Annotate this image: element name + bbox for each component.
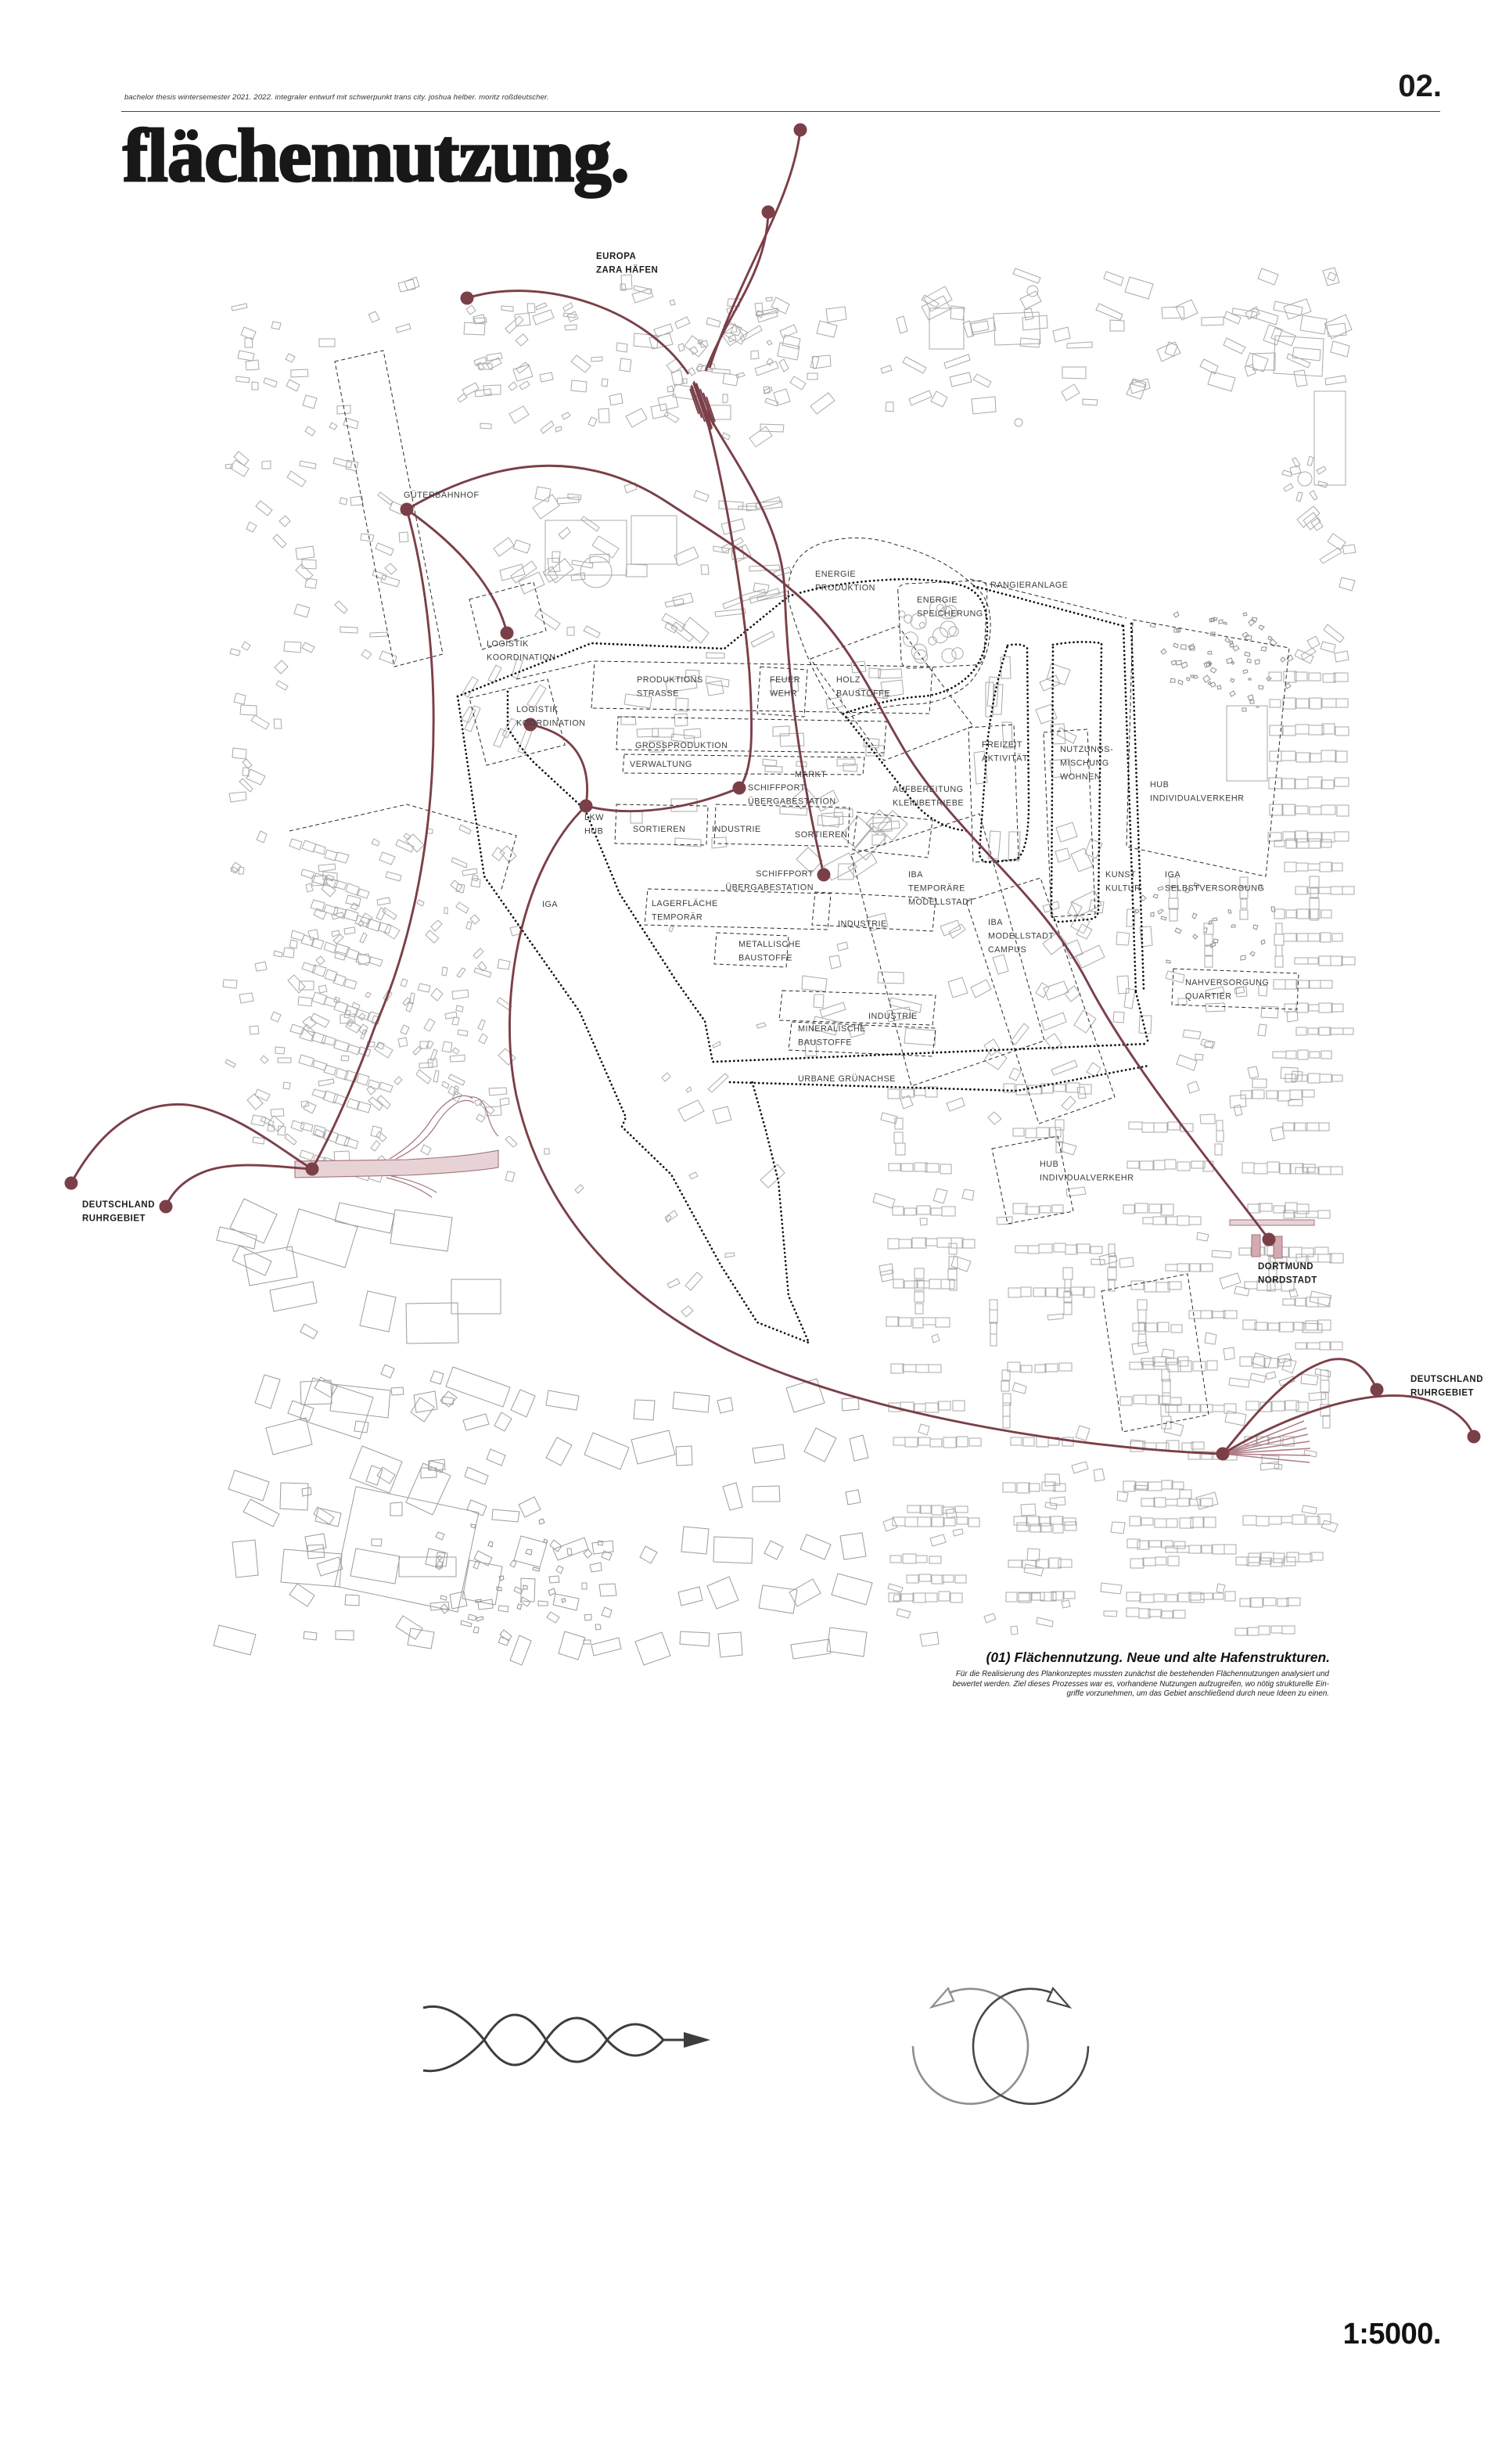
svg-text:SORTIEREN: SORTIEREN — [795, 830, 847, 840]
svg-text:SCHIFFPORT: SCHIFFPORT — [756, 869, 814, 879]
svg-text:GROSSPRODUKTION: GROSSPRODUKTION — [635, 741, 728, 750]
svg-text:PRODUKTIONS: PRODUKTIONS — [637, 675, 703, 685]
svg-text:KOORDINATION: KOORDINATION — [516, 719, 586, 728]
svg-text:WOHNEN: WOHNEN — [1060, 772, 1101, 782]
svg-text:RUHRGEBIET: RUHRGEBIET — [1410, 1389, 1474, 1398]
svg-text:LOGISTIK: LOGISTIK — [516, 705, 559, 714]
svg-text:INDIVIDUALVERKEHR: INDIVIDUALVERKEHR — [1040, 1174, 1134, 1183]
svg-text:INDUSTRIE: INDUSTRIE — [838, 919, 887, 929]
svg-text:SORTIEREN: SORTIEREN — [633, 825, 685, 834]
svg-text:TEMPORÄRE: TEMPORÄRE — [908, 884, 965, 894]
svg-text:NUTZUNGS-: NUTZUNGS- — [1060, 745, 1113, 754]
svg-text:METALLISCHE: METALLISCHE — [738, 940, 801, 949]
svg-text:HOLZ: HOLZ — [836, 675, 861, 685]
svg-text:DEUTSCHLAND: DEUTSCHLAND — [82, 1200, 155, 1210]
svg-text:IBA: IBA — [988, 918, 1003, 927]
svg-text:ÜBERGABESTATION: ÜBERGABESTATION — [725, 883, 814, 893]
svg-text:LKW: LKW — [584, 813, 604, 822]
svg-text:KOORDINATION: KOORDINATION — [487, 653, 556, 663]
svg-text:KULTUR: KULTUR — [1105, 884, 1141, 894]
svg-text:MINERALISCHE: MINERALISCHE — [798, 1024, 866, 1034]
svg-text:IGA: IGA — [1165, 870, 1180, 879]
svg-text:HUB: HUB — [1150, 780, 1169, 790]
svg-text:INDUSTRIE: INDUSTRIE — [712, 825, 761, 834]
svg-text:URBANE GRÜNACHSE: URBANE GRÜNACHSE — [798, 1074, 896, 1084]
svg-text:SCHIFFPORT: SCHIFFPORT — [748, 783, 806, 793]
svg-text:RUHRGEBIET: RUHRGEBIET — [82, 1214, 146, 1224]
svg-text:DORTMUND: DORTMUND — [1258, 1262, 1313, 1272]
svg-text:FEUER: FEUER — [770, 675, 800, 685]
svg-text:SELBSTVERSORGUNG: SELBSTVERSORGUNG — [1165, 884, 1264, 894]
svg-text:KLEINBETRIEBE: KLEINBETRIEBE — [893, 799, 964, 808]
svg-text:INDUSTRIE: INDUSTRIE — [868, 1012, 918, 1021]
svg-text:BAUSTOFFE: BAUSTOFFE — [738, 954, 792, 963]
svg-text:PRODUKTION: PRODUKTION — [815, 584, 875, 593]
svg-text:INDIVIDUALVERKEHR: INDIVIDUALVERKEHR — [1150, 794, 1245, 804]
svg-text:MODELLSTADT: MODELLSTADT — [988, 932, 1055, 941]
svg-text:VERWALTUNG: VERWALTUNG — [630, 760, 692, 769]
svg-text:WEHR: WEHR — [770, 689, 797, 699]
svg-text:SPEICHERUNG: SPEICHERUNG — [917, 610, 983, 619]
svg-text:STRASSE: STRASSE — [637, 689, 679, 699]
svg-text:BAUSTOFFE: BAUSTOFFE — [836, 689, 890, 699]
svg-text:ÜBERGABESTATION: ÜBERGABESTATION — [748, 797, 836, 807]
svg-text:IBA: IBA — [908, 870, 923, 879]
svg-text:DEUTSCHLAND: DEUTSCHLAND — [1410, 1375, 1483, 1384]
svg-text:ZARA HÄFEN: ZARA HÄFEN — [596, 265, 658, 275]
svg-text:MISCHUNG: MISCHUNG — [1060, 759, 1109, 768]
svg-text:RANGIERANLAGE: RANGIERANLAGE — [990, 581, 1069, 590]
svg-text:GÜTERBAHNHOF: GÜTERBAHNHOF — [404, 491, 480, 500]
svg-text:CAMPUS: CAMPUS — [988, 945, 1026, 955]
svg-text:FREIZEIT: FREIZEIT — [982, 740, 1022, 750]
svg-text:HUB: HUB — [1040, 1160, 1058, 1169]
svg-text:LOGISTIK: LOGISTIK — [487, 639, 529, 649]
svg-text:IGA: IGA — [542, 900, 558, 909]
svg-text:NORDSTADT: NORDSTADT — [1258, 1276, 1317, 1286]
svg-text:HUB: HUB — [584, 827, 603, 836]
svg-text:QUARTIER: QUARTIER — [1185, 992, 1232, 1002]
svg-text:TEMPORÄR: TEMPORÄR — [652, 913, 702, 923]
svg-text:NAHVERSORGUNG: NAHVERSORGUNG — [1185, 978, 1269, 987]
svg-text:MODELLSTADT: MODELLSTADT — [908, 897, 975, 907]
svg-text:ENERGIE: ENERGIE — [815, 570, 856, 579]
svg-text:MARKT: MARKT — [795, 770, 826, 779]
svg-text:EUROPA: EUROPA — [596, 252, 636, 261]
svg-text:ENERGIE: ENERGIE — [917, 595, 958, 605]
svg-text:LAGERFLÄCHE: LAGERFLÄCHE — [652, 899, 718, 908]
svg-text:KUNST: KUNST — [1105, 870, 1136, 879]
svg-text:AKTIVITÄT: AKTIVITÄT — [982, 754, 1028, 764]
svg-text:BAUSTOFFE: BAUSTOFFE — [798, 1038, 852, 1048]
svg-text:AUFBEREITUNG: AUFBEREITUNG — [893, 785, 964, 794]
